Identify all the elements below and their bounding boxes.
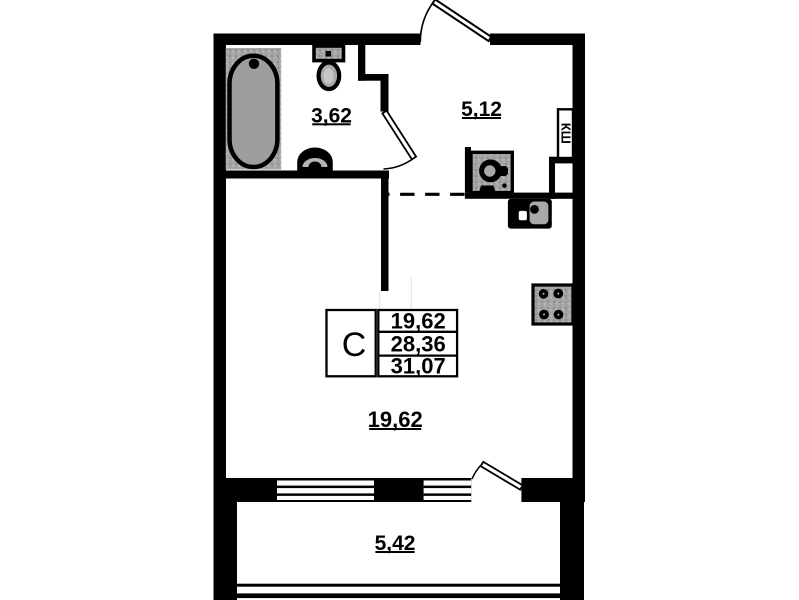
svg-text:31,07: 31,07 [391,354,446,379]
svg-text:19,62: 19,62 [391,309,446,334]
svg-text:КШ: КШ [559,123,574,144]
svg-text:С: С [342,326,367,364]
